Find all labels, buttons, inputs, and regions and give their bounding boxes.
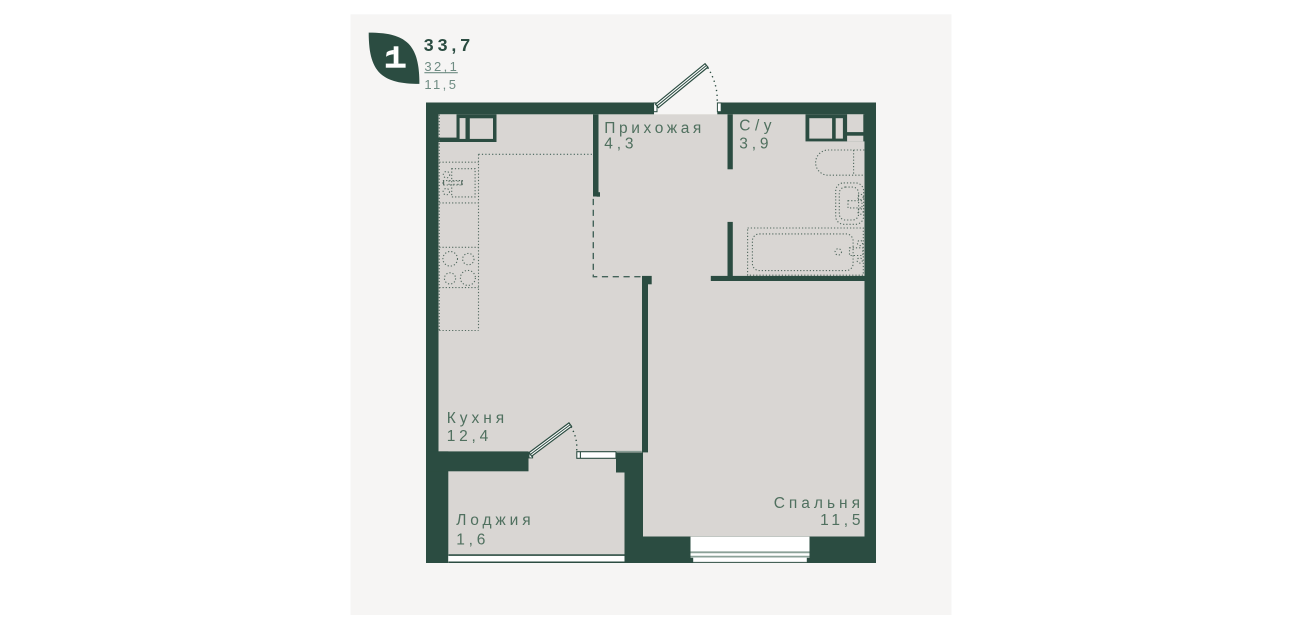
svg-text:11,5: 11,5 bbox=[424, 77, 458, 92]
svg-text:Прихожая: Прихожая bbox=[604, 120, 705, 137]
svg-text:33,7: 33,7 bbox=[424, 35, 474, 55]
svg-text:3,9: 3,9 bbox=[739, 136, 772, 153]
svg-text:11,5: 11,5 bbox=[820, 512, 864, 529]
svg-text:4,3: 4,3 bbox=[604, 136, 637, 153]
svg-text:32,1: 32,1 bbox=[424, 59, 459, 74]
svg-text:Кухня: Кухня bbox=[447, 410, 508, 427]
svg-text:1,6: 1,6 bbox=[456, 532, 489, 549]
svg-text:12,4: 12,4 bbox=[447, 428, 492, 445]
svg-text:Спальня: Спальня bbox=[774, 495, 864, 512]
svg-text:Лоджия: Лоджия bbox=[456, 512, 534, 529]
svg-text:С/у: С/у bbox=[739, 117, 776, 134]
